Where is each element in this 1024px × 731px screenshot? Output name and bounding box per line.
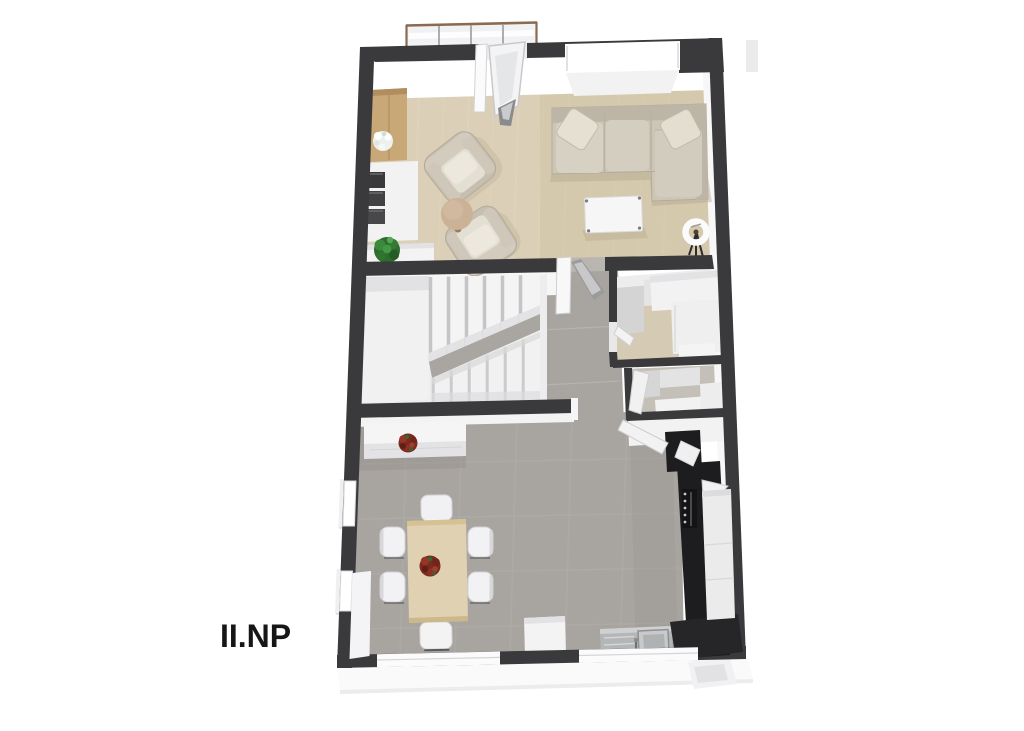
svg-text:II.NP: II.NP: [220, 618, 291, 654]
